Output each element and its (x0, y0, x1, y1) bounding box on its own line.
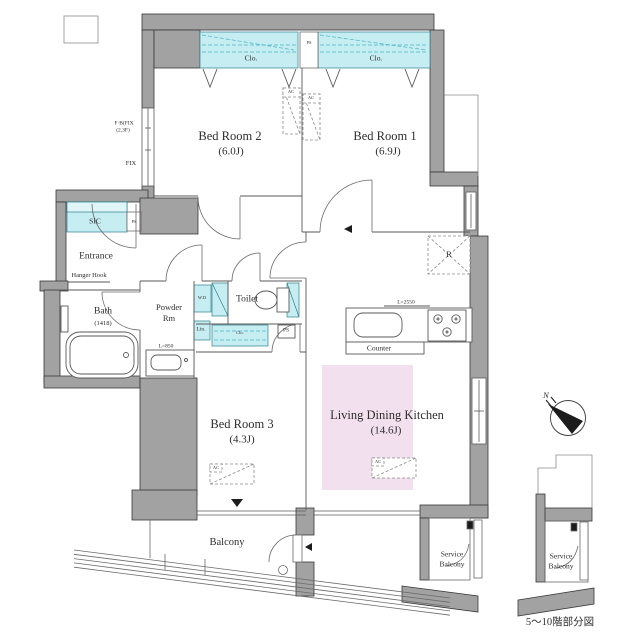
powder-label-line1: Powder (156, 303, 182, 312)
sliding-door-ldk (314, 511, 420, 515)
door-powder (166, 245, 202, 281)
service-balcony2-slab (518, 588, 594, 616)
site-boundary-lines (74, 550, 450, 615)
sic-label: SIC (89, 217, 101, 225)
ac-label-bedroom3: AC (213, 466, 219, 471)
floor-caption: 5〜10階部分図 (526, 618, 594, 629)
door-balcony (269, 535, 302, 562)
washer-dryer-label: W.D (198, 296, 206, 301)
closet-bedroom3-strip (212, 325, 268, 346)
ac-label-1: AC (288, 90, 294, 95)
closet-label-strip: Clo. (236, 331, 244, 336)
toilet-fixture (255, 288, 289, 312)
basin-length-label: L=850 (159, 344, 174, 350)
bedroom1-label: Bed Room 1 (353, 130, 416, 143)
balcony-area (74, 518, 588, 615)
sic-shelf (67, 202, 127, 212)
linen-label: Lin. (196, 327, 205, 333)
door-bedroom2 (198, 197, 240, 239)
bedroom2-size: (6.0J) (218, 147, 243, 158)
ldk-size: (14.6J) (371, 426, 402, 437)
ps-label-top: PS (306, 41, 311, 46)
bathtub (66, 332, 138, 378)
powder-label-line2: Rm (163, 314, 175, 323)
washbasin (146, 350, 194, 376)
ps-top-box (300, 32, 318, 68)
service-balcony-label-line1: Service (441, 550, 464, 558)
kitchen-length-label: L=2550 (397, 300, 414, 306)
balcony-label: Balcony (210, 538, 245, 549)
counter-label: Counter (367, 344, 391, 352)
bath-counter (61, 306, 68, 332)
fix-note-line2: (2,3F) (116, 128, 130, 134)
ac-label-2: AC (308, 96, 314, 101)
closet-label-right: Clo. (370, 54, 383, 62)
service-balcony2-label-line1: Service (550, 552, 573, 560)
toilet-label: Toilet (236, 295, 258, 305)
service-balcony-slab (402, 586, 478, 612)
bedroom3-label: Bed Room 3 (210, 418, 273, 431)
floor-plan: Bed Room 2 (6.0J) Bed Room 1 (6.9J) Clo.… (0, 0, 623, 640)
closet-label-left: Clo. (245, 54, 258, 62)
wall-top (142, 14, 434, 30)
north-label: N (543, 391, 549, 400)
wall-right-main (470, 236, 488, 518)
fix-label: FIX (126, 161, 136, 168)
ac-box-bedroom1 (303, 94, 320, 140)
door-bedroom1 (320, 180, 372, 232)
kitchen-sink (354, 313, 402, 337)
entrance-label: Entrance (79, 252, 113, 262)
kitchen-counter (346, 306, 472, 342)
bath-size: (1418) (94, 321, 111, 328)
fix-note-line1: F·B(FIX (114, 121, 133, 127)
door-ldk (270, 242, 306, 278)
bedroom3-size: (4.3J) (229, 435, 254, 446)
refrigerator-label: R (446, 250, 452, 259)
service-balcony2-label-line2: Balcony (549, 562, 574, 570)
bedroom1-size: (6.9J) (375, 147, 400, 158)
hanger-hook-label: Hanger Hook (71, 273, 106, 280)
drain (279, 566, 288, 575)
window-marker-triangle (231, 499, 243, 507)
ps-label-entrance: PS (131, 220, 136, 225)
hanger-pipes (203, 69, 419, 87)
bath-label: Bath (94, 307, 112, 317)
ac-box-bedroom2 (283, 88, 300, 134)
sliding-door-bedroom3 (197, 511, 306, 515)
bedroom2-label: Bed Room 2 (198, 130, 261, 143)
ac-label-ldk: AC (375, 460, 381, 465)
kitchen-entry-marker (344, 225, 352, 233)
door-toilet (232, 253, 260, 281)
service-balcony-label-line2: Balcony (440, 560, 465, 568)
balcony-door-marker (305, 543, 312, 551)
ldk-label: Living Dining Kitchen (330, 409, 444, 422)
north-compass (546, 397, 586, 436)
ps-label-toilet: PS (283, 328, 289, 334)
